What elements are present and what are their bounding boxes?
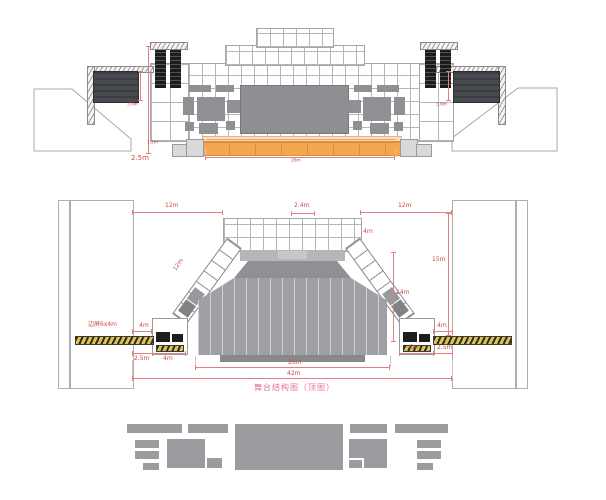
footer-block: [207, 458, 222, 468]
equipment-block: [370, 123, 389, 134]
extension-line: [452, 360, 453, 378]
dim-label-right-gap: 4m: [363, 229, 373, 235]
dim-label-top-right: 12m: [398, 203, 411, 209]
equipment-block: [197, 97, 225, 121]
equipment-block: [227, 100, 240, 113]
footer-block: [395, 424, 448, 433]
dim-label-left-hatch: 4m: [139, 323, 149, 329]
footer-block: [135, 440, 159, 448]
side-led-screen-right: [453, 71, 500, 103]
equipment-block: [199, 123, 218, 134]
footer-block-center: [235, 424, 343, 470]
footer-block: [349, 460, 362, 468]
dim-line-top-left: [132, 212, 223, 213]
line-array-speaker: [155, 50, 166, 88]
plan-stage-riser: [234, 261, 351, 278]
dim-line-bottom-right: [399, 353, 453, 354]
dim-label-right-truss: 14m: [396, 290, 409, 296]
dim-tick: [433, 351, 434, 356]
dim-line-plan-stage-width: [195, 367, 390, 368]
plan-speaker-hatch-left: [156, 345, 184, 352]
dim-line-left-hatch: [132, 331, 152, 332]
dim-line-screen-left: [140, 71, 141, 101]
dim-line-bottom-left: [132, 353, 186, 354]
equipment-block: [226, 121, 235, 130]
dim-line-screen-right: [448, 71, 449, 101]
dim-line-top-right: [360, 212, 452, 213]
dim-label-screen-left: 3.6m: [127, 103, 138, 107]
plan-wall-right-outer: [516, 200, 528, 389]
footer-block: [167, 439, 205, 468]
equipment-block: [377, 85, 399, 92]
stage-deck: [202, 141, 402, 156]
dim-label-bottom-right-box: 6m: [409, 345, 419, 351]
line-array-speaker: [440, 50, 451, 88]
dim-line-top-center: [291, 213, 315, 214]
dim-label-screen-right: 3.6m: [436, 103, 447, 107]
dim-label-plan-stage-width: 26m: [288, 360, 301, 366]
dim-label-stage-width: 26m: [291, 159, 301, 163]
footer-block: [417, 440, 441, 448]
plan-speaker-left: [156, 332, 170, 342]
footer-block: [417, 451, 441, 459]
dim-label-right-side: 15m: [432, 257, 445, 263]
equipment-block: [394, 122, 403, 131]
dim-line-right-truss: [393, 252, 394, 342]
dim-label-top-center: 2.4m: [294, 203, 309, 209]
stage-deck-redline: [206, 139, 396, 140]
footer-block: [135, 451, 159, 459]
equipment-block: [185, 122, 194, 131]
main-led-screen: [240, 85, 349, 134]
dim-tick: [152, 351, 153, 356]
side-screen-label: 边屏6x4m: [88, 322, 117, 328]
footer-block: [350, 424, 387, 433]
footer-block: [364, 458, 387, 468]
dim-label-top-left: 12m: [165, 203, 178, 209]
equipment-block: [183, 97, 194, 115]
truss-grid-top: [256, 28, 334, 48]
footer-block: [417, 463, 433, 470]
dim-label-bottom-right-gap: 2.5m: [437, 345, 452, 351]
dim-label-left-offset: 2.5m: [131, 155, 149, 162]
footer-block: [143, 463, 159, 470]
plan-stage-main-deck: [198, 278, 387, 355]
plan-wall-left: [70, 200, 134, 389]
equipment-block: [348, 100, 361, 113]
footer-block: [349, 439, 387, 458]
dim-label-bottom-left-gap: 2.5m: [134, 356, 149, 362]
speaker-tower-truss-right: [420, 42, 458, 50]
dim-line-right-hatch: [433, 331, 453, 332]
plan-speaker-right: [419, 334, 430, 342]
plan-caption: 舞台结构图（顶图）: [254, 384, 335, 392]
plan-speaker-left: [172, 334, 183, 342]
extension-line: [390, 356, 391, 367]
equipment-block: [216, 85, 234, 92]
dim-line-left-offset: [148, 46, 149, 154]
side-screen-truss-left: [75, 336, 154, 345]
plan-stage-center-tab: [278, 251, 307, 259]
footer-block: [188, 424, 228, 433]
dim-label-right-hatch: 4m: [437, 323, 447, 329]
extension-line: [395, 149, 396, 157]
dim-line-total-width: [132, 378, 452, 379]
stage-step: [186, 139, 204, 157]
equipment-block: [394, 97, 405, 115]
plan-back-truss-grid: [223, 218, 362, 252]
dim-line-right-side: [448, 213, 449, 336]
speaker-tower-truss-left: [150, 42, 188, 50]
footer-block: [127, 424, 182, 433]
plan-wall-right: [452, 200, 516, 389]
dim-label-stage-height: 1.2m: [147, 141, 158, 145]
equipment-block: [363, 97, 391, 121]
side-led-screen-left: [93, 71, 139, 103]
stage-structure-diagram: 2.5m 3.6m 3.6m 1.2m 26m 12m 2.4m 12m: [0, 0, 606, 500]
dim-label-bottom-left-box: 4m: [163, 356, 173, 362]
line-array-speaker: [170, 50, 181, 88]
equipment-block: [353, 121, 362, 130]
equipment-block: [354, 85, 372, 92]
dim-label-total-width: 42m: [287, 371, 300, 377]
stage-step: [416, 144, 432, 157]
equipment-block: [189, 85, 211, 92]
plan-speaker-right: [403, 332, 417, 342]
line-array-speaker: [425, 50, 436, 88]
plan-wall-left-outer: [58, 200, 70, 389]
truss-grid-level2: [225, 45, 365, 66]
